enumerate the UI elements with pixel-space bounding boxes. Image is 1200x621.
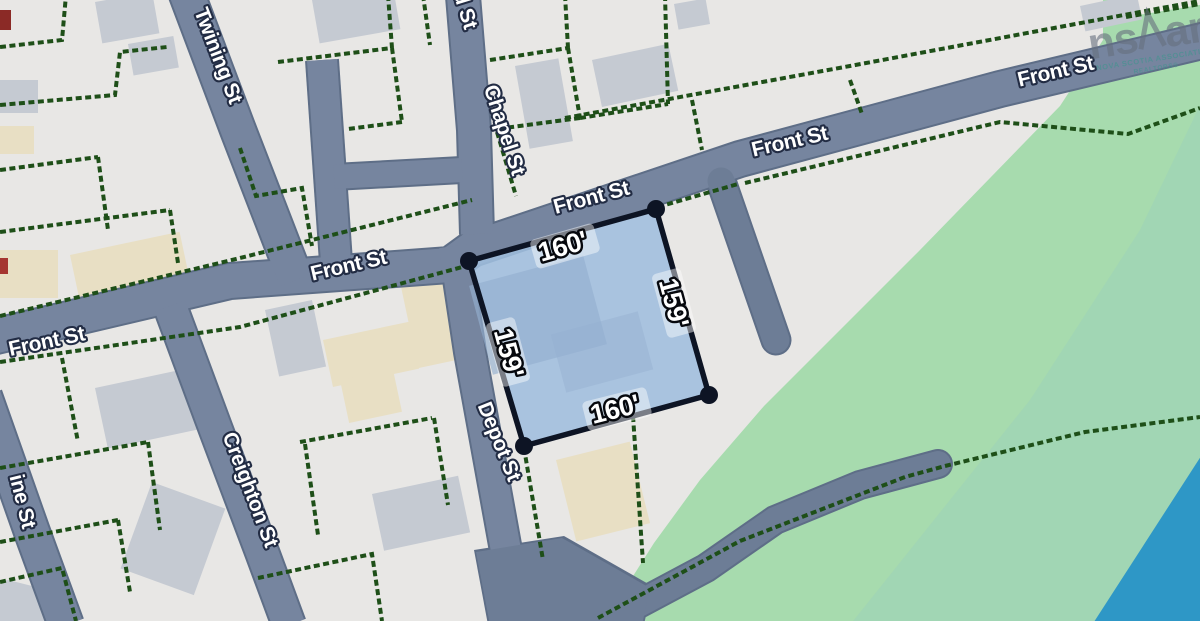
building [0,80,38,113]
building [0,250,58,298]
map-canvas[interactable]: 160' 159' 159' 160' Front St Front St Fr… [0,0,1200,621]
lane-street [322,60,336,262]
chapel-street [462,0,477,234]
building [0,126,34,154]
map-viewport[interactable]: 160' 159' 159' 160' Front St Front St Fr… [0,0,1200,621]
lane-branch [334,170,462,177]
